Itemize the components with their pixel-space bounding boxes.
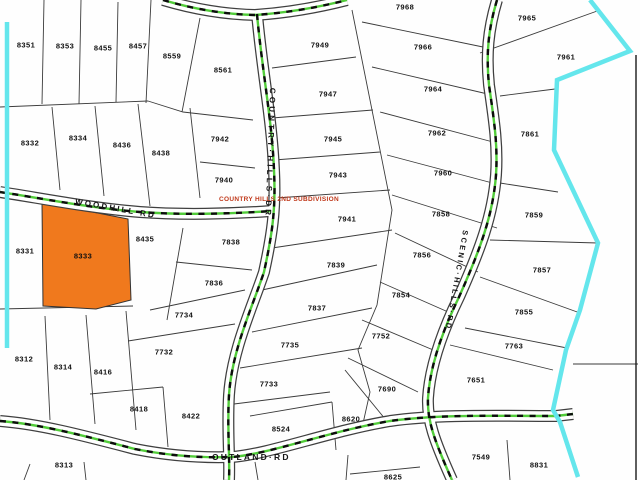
parcel-label-7947[interactable]: 7947	[319, 90, 337, 99]
parcel-label-8455[interactable]: 8455	[94, 44, 112, 53]
parcel-label-7732[interactable]: 7732	[155, 348, 173, 357]
parcel-label-8561[interactable]: 8561	[214, 66, 232, 75]
parcel-label-8435[interactable]: 8435	[136, 235, 154, 244]
parcel-label-8416[interactable]: 8416	[94, 368, 112, 377]
parcel-label-7859[interactable]: 7859	[525, 211, 543, 220]
parcel-label-7837[interactable]: 7837	[308, 304, 326, 313]
parcel-label-7690[interactable]: 7690	[378, 385, 396, 394]
parcel-label-8418[interactable]: 8418	[130, 405, 148, 414]
parcel-label-7940[interactable]: 7940	[215, 176, 233, 185]
parcel-label-7861[interactable]: 7861	[521, 130, 539, 139]
parcel-label-7839[interactable]: 7839	[327, 261, 345, 270]
map-canvas[interactable]	[0, 0, 640, 480]
parcel-label-7858[interactable]: 7858	[432, 210, 450, 219]
parcel-label-8831[interactable]: 8831	[530, 461, 548, 470]
parcel-label-8314[interactable]: 8314	[54, 363, 72, 372]
parcel-label-7856[interactable]: 7856	[413, 251, 431, 260]
parcel-label-8625[interactable]: 8625	[384, 473, 402, 480]
parcel-label-7961[interactable]: 7961	[557, 53, 575, 62]
parcel-label-8333[interactable]: 8333	[74, 252, 92, 261]
parcel-label-8457[interactable]: 8457	[129, 42, 147, 51]
parcel-label-7964[interactable]: 7964	[424, 85, 442, 94]
parcel-label-8351[interactable]: 8351	[17, 41, 35, 50]
parcel-label-7651[interactable]: 7651	[467, 376, 485, 385]
parcel-label-8438[interactable]: 8438	[152, 149, 170, 158]
parcel-label-7836[interactable]: 7836	[205, 279, 223, 288]
parcel-label-7968[interactable]: 7968	[396, 3, 414, 12]
parcel-label-7854[interactable]: 7854	[392, 291, 410, 300]
parcel-label-8313[interactable]: 8313	[55, 461, 73, 470]
parcel-label-8422[interactable]: 8422	[182, 412, 200, 421]
parcel-label-7734[interactable]: 7734	[175, 311, 193, 320]
parcel-label-8524[interactable]: 8524	[272, 425, 290, 434]
parcel-label-8559[interactable]: 8559	[163, 52, 181, 61]
parcel-label-7735[interactable]: 7735	[281, 341, 299, 350]
parcel-label-7763[interactable]: 7763	[505, 342, 523, 351]
parcel-label-8436[interactable]: 8436	[113, 141, 131, 150]
parcel-label-7733[interactable]: 7733	[260, 380, 278, 389]
parcel-label-7949[interactable]: 7949	[311, 41, 329, 50]
parcel-label-7549[interactable]: 7549	[472, 453, 490, 462]
parcel-label-8312[interactable]: 8312	[15, 355, 33, 364]
parcel-label-7942[interactable]: 7942	[211, 135, 229, 144]
parcel-label-7857[interactable]: 7857	[533, 266, 551, 275]
parcel-map[interactable]: 8351835384558457855985618332833484368438…	[0, 0, 640, 480]
parcel-label-8332[interactable]: 8332	[21, 139, 39, 148]
parcel-label-7941[interactable]: 7941	[338, 215, 356, 224]
parcel-label-7752[interactable]: 7752	[372, 332, 390, 341]
parcel-label-7965[interactable]: 7965	[518, 14, 536, 23]
parcel-label-7966[interactable]: 7966	[414, 43, 432, 52]
boundary-line-right	[553, 0, 630, 477]
parcel-label-7838[interactable]: 7838	[222, 238, 240, 247]
parcel-label-8331[interactable]: 8331	[16, 247, 34, 256]
parcel-label-7945[interactable]: 7945	[324, 135, 342, 144]
parcel-label-7962[interactable]: 7962	[428, 129, 446, 138]
parcel-label-8353[interactable]: 8353	[56, 42, 74, 51]
parcel-label-7960[interactable]: 7960	[434, 169, 452, 178]
parcel-label-7855[interactable]: 7855	[515, 308, 533, 317]
parcel-label-8620[interactable]: 8620	[342, 415, 360, 424]
parcel-label-7943[interactable]: 7943	[329, 171, 347, 180]
parcel-label-8334[interactable]: 8334	[69, 134, 87, 143]
